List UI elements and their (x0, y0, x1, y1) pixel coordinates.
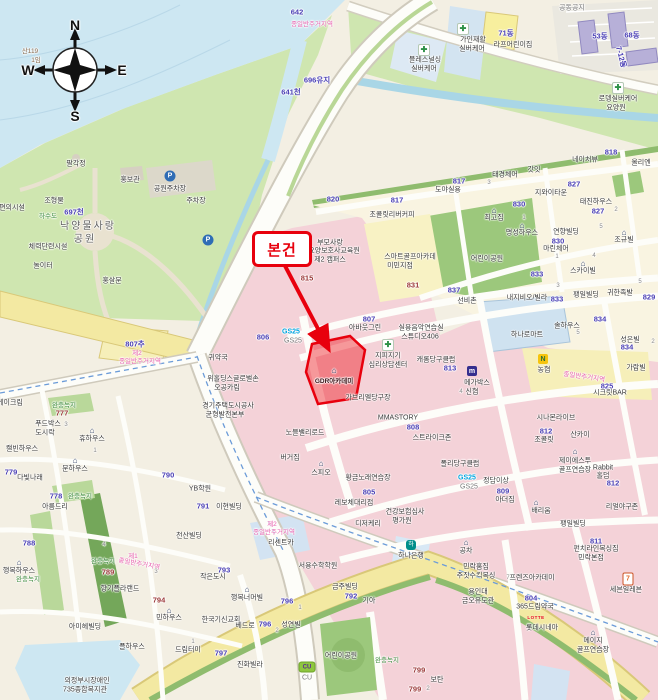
subject-callout: 본건 (252, 231, 312, 267)
basemap (0, 0, 658, 700)
subject-callout-label: 본건 (267, 239, 297, 260)
pond (15, 640, 140, 700)
cadastral-map: NWES산1191임팔각정홍보관공원주차장주차장조형물편의시설하수도697천낙양… (0, 0, 658, 700)
children-park-circle (331, 638, 365, 672)
subject-parcel (306, 336, 365, 404)
